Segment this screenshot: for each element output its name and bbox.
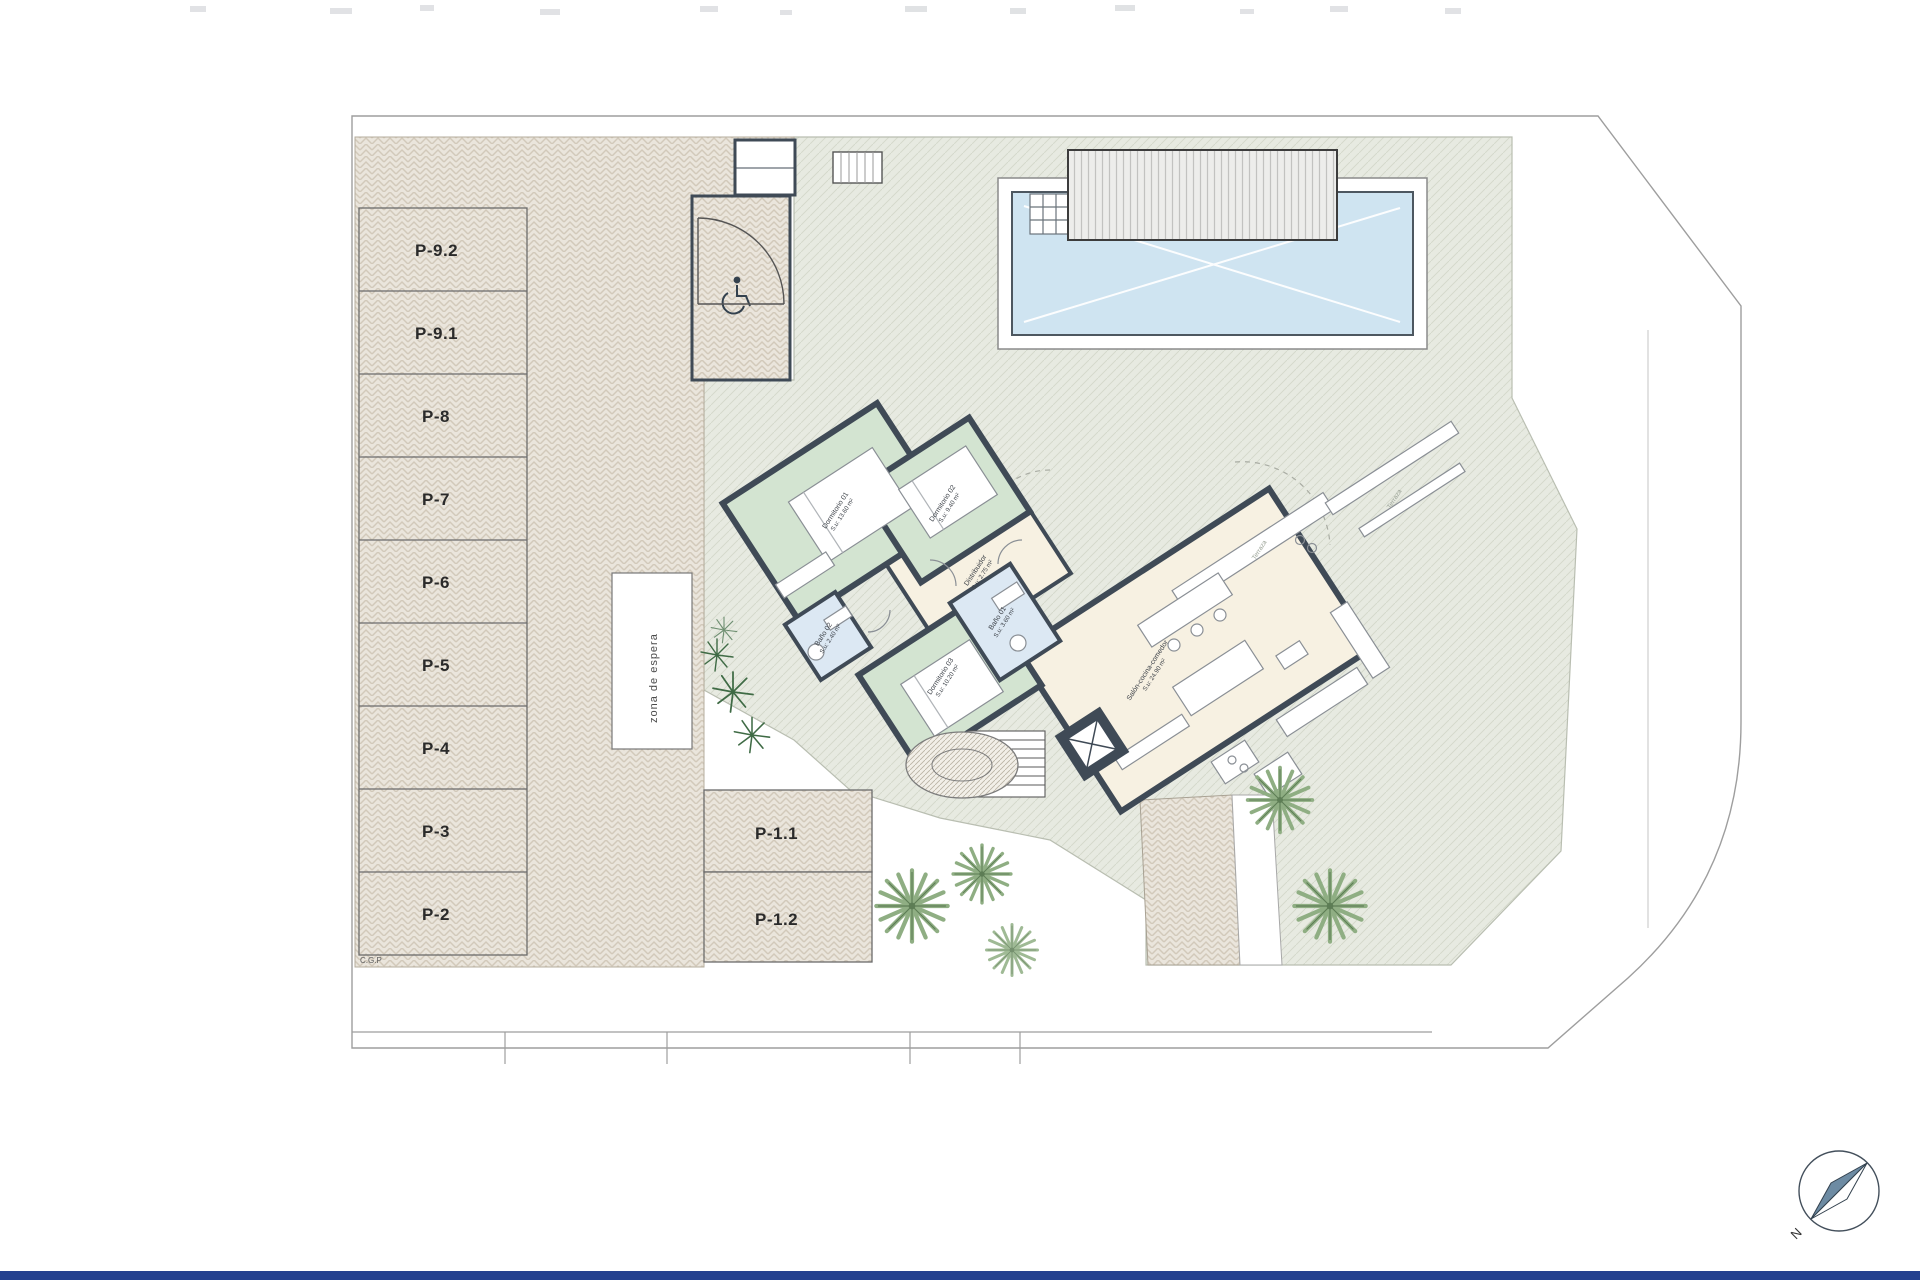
stall-label-p5: P-5 (422, 656, 450, 675)
entry-path-hatched (1140, 795, 1240, 965)
compass-north-label: N (1788, 1225, 1805, 1242)
pool-ladder (1030, 194, 1070, 234)
pool (998, 150, 1427, 349)
stall-label-p9-1: P-9.1 (415, 324, 458, 343)
stall-label-p3: P-3 (422, 822, 450, 841)
pool-roof (1068, 150, 1337, 240)
stall-label-p1-2: P-1.2 (755, 910, 798, 929)
stall-label-p9-2: P-9.2 (415, 241, 458, 260)
ramp-oval (906, 732, 1018, 798)
waiting-zone: zona de espera (612, 573, 692, 749)
stall-label-p2: P-2 (422, 905, 450, 924)
site-plan-svg: P-9.2 P-9.1 P-8 P-7 P-6 P-5 P-4 P-3 P-2 … (0, 0, 1920, 1280)
scan-artifacts (190, 5, 1461, 15)
compass-rose: N (1788, 1151, 1879, 1242)
footer-bar (0, 1271, 1920, 1280)
parking-stall-column: P-9.2 P-9.1 P-8 P-7 P-6 P-5 P-4 P-3 P-2 (359, 208, 527, 955)
stall-label-p6: P-6 (422, 573, 450, 592)
waiting-zone-label: zona de espera (648, 633, 660, 723)
stall-label-p8: P-8 (422, 407, 450, 426)
front-stalls: P-1.1 P-1.2 (704, 790, 872, 962)
cgp-label: C.G.P (360, 956, 382, 965)
vent-box (833, 152, 882, 183)
stall-label-p7: P-7 (422, 490, 450, 509)
stall-label-p4: P-4 (422, 739, 450, 758)
stall-label-p1-1: P-1.1 (755, 824, 798, 843)
